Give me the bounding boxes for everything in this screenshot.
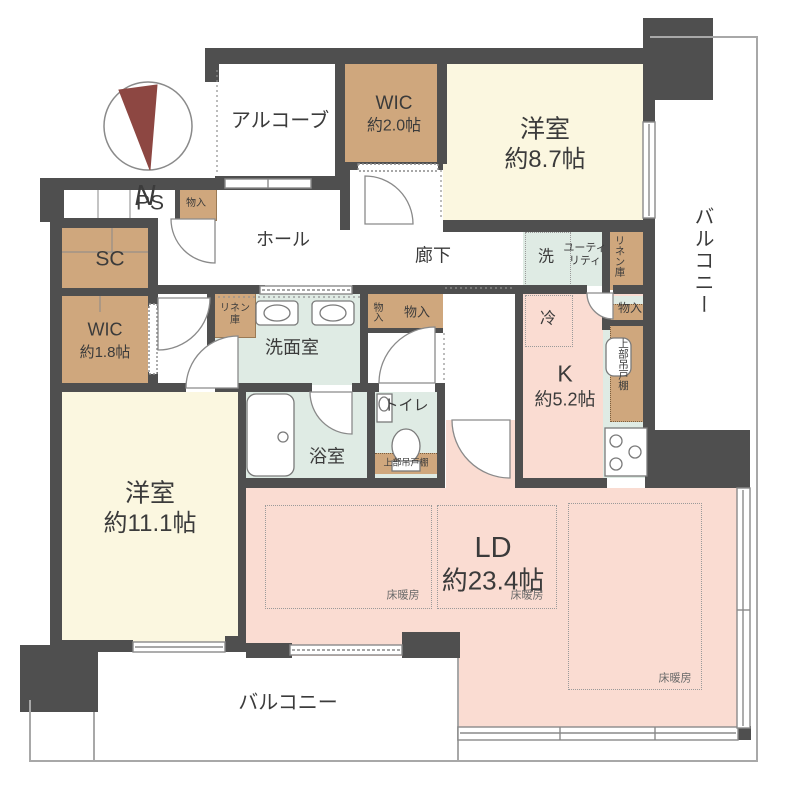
room-label-sc: SC (95, 248, 124, 273)
wall (238, 478, 445, 488)
wall (515, 478, 607, 488)
room-label-wic-upper: WIC (376, 93, 413, 115)
label-fridge: 冷 (540, 311, 556, 330)
room-label-utility: ユーティリティ (561, 242, 609, 268)
closet-label-linen-upper: リネン庫 (613, 234, 625, 278)
room-label-toilet: トイレ (383, 397, 428, 415)
wall (515, 285, 587, 294)
room-size-wic-lower: 約1.8帖 (80, 344, 131, 362)
wall (215, 176, 345, 190)
wall (402, 632, 460, 658)
room-label-bedroom-87: 洋室 (520, 115, 570, 145)
room-label-bedroom-111: 洋室 (125, 479, 175, 509)
label-floor-heating-1: 床暖房 (387, 590, 420, 603)
wall (335, 64, 345, 176)
wall (225, 636, 246, 652)
wall (737, 726, 751, 740)
closet-label-hanging-cabinet-kitchen: 上部吊戸棚 (616, 312, 631, 416)
closet-label-linen-washroom: リネン庫 (218, 303, 252, 327)
compass-icon (104, 82, 192, 170)
room-label-bathroom: 浴室 (309, 446, 345, 467)
room-label-alcove: アルコーブ (231, 110, 329, 134)
room-label-ld: LD (474, 531, 511, 565)
closet-label-storage-hall-small: 物入 (369, 296, 384, 328)
closet-label-storage-kitchen: 物入 (618, 301, 642, 315)
wall (62, 383, 150, 392)
room-label-washroom: 洗面室 (265, 337, 319, 358)
floor-plan: アルコーブ WIC 約2.0帖 洋室 約8.7帖 バルコニー PS 物入 SC … (0, 0, 800, 800)
wall (645, 430, 750, 488)
wall (443, 220, 655, 232)
wall (345, 162, 443, 170)
wall (20, 645, 98, 712)
wall (205, 48, 219, 82)
label-floor-heating-2: 床暖房 (511, 590, 544, 603)
closet-label-hanging-cabinet-toilet: 上部吊戸棚 (383, 458, 428, 469)
wall (367, 390, 375, 480)
closet-label-storage-entrance: 物入 (186, 198, 206, 210)
wall (340, 168, 350, 230)
wall (148, 290, 158, 308)
wall (205, 48, 655, 64)
wall (207, 290, 215, 385)
wall (515, 288, 523, 488)
wall (437, 64, 447, 164)
room-ld-entry (446, 420, 515, 490)
room-label-balcony-right: バルコニー (688, 178, 717, 343)
wall (643, 218, 655, 432)
room-wic-upper (345, 64, 443, 168)
wall (175, 188, 180, 219)
wall (437, 383, 445, 480)
floor-heating-zone-3 (568, 503, 702, 690)
wall (643, 64, 655, 122)
wall (40, 178, 64, 222)
room-size-bedroom-111: 約11.1帖 (104, 510, 197, 538)
compass-needle (119, 85, 157, 170)
wall (150, 383, 186, 392)
room-label-corridor: 廊下 (415, 245, 451, 266)
wall (367, 328, 443, 333)
room-label-kitchen: K (557, 360, 572, 387)
wall (62, 218, 150, 228)
closet-label-storage-hall: 物入 (404, 304, 430, 319)
room-bathroom (246, 392, 367, 478)
room-label-hall: ホール (256, 229, 310, 250)
wall (360, 290, 368, 390)
room-label-balcony-bottom: バルコニー (238, 692, 338, 716)
wall (352, 285, 522, 294)
compass-north-label: N (135, 179, 156, 213)
wall (215, 383, 312, 392)
room-label-wic-lower: WIC (88, 319, 123, 340)
room-size-kitchen: 約5.2帖 (534, 389, 595, 410)
wall (50, 178, 62, 655)
wall (238, 383, 246, 643)
wall (62, 288, 150, 296)
room-size-bedroom-87: 約8.7帖 (504, 146, 585, 174)
wall (148, 218, 158, 290)
room-size-wic-upper: 約2.0帖 (367, 118, 421, 137)
wall (246, 643, 292, 658)
label-floor-heating-3: 床暖房 (659, 673, 692, 686)
label-washer: 洗 (538, 249, 554, 268)
